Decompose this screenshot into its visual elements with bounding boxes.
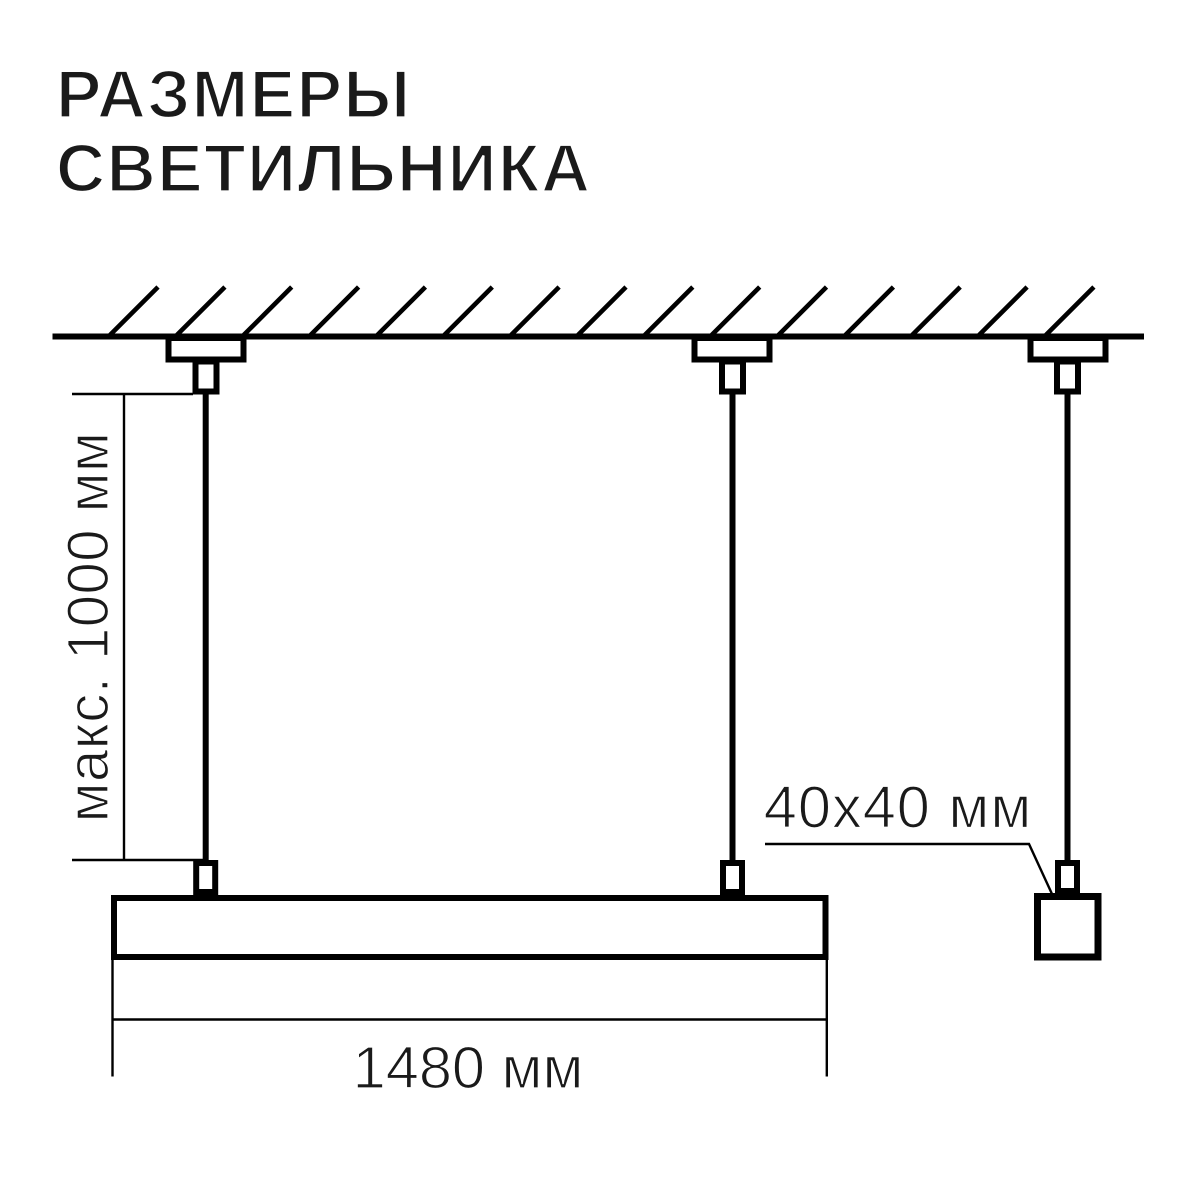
svg-text:РАЗМЕРЫ: РАЗМЕРЫ [56,57,412,133]
svg-text:макс. 1000 мм: макс. 1000 мм [56,432,121,823]
svg-text:40x40 мм: 40x40 мм [764,774,1032,841]
svg-text:СВЕТИЛЬНИКА: СВЕТИЛЬНИКА [56,131,592,207]
svg-text:1480 мм: 1480 мм [353,1034,584,1101]
